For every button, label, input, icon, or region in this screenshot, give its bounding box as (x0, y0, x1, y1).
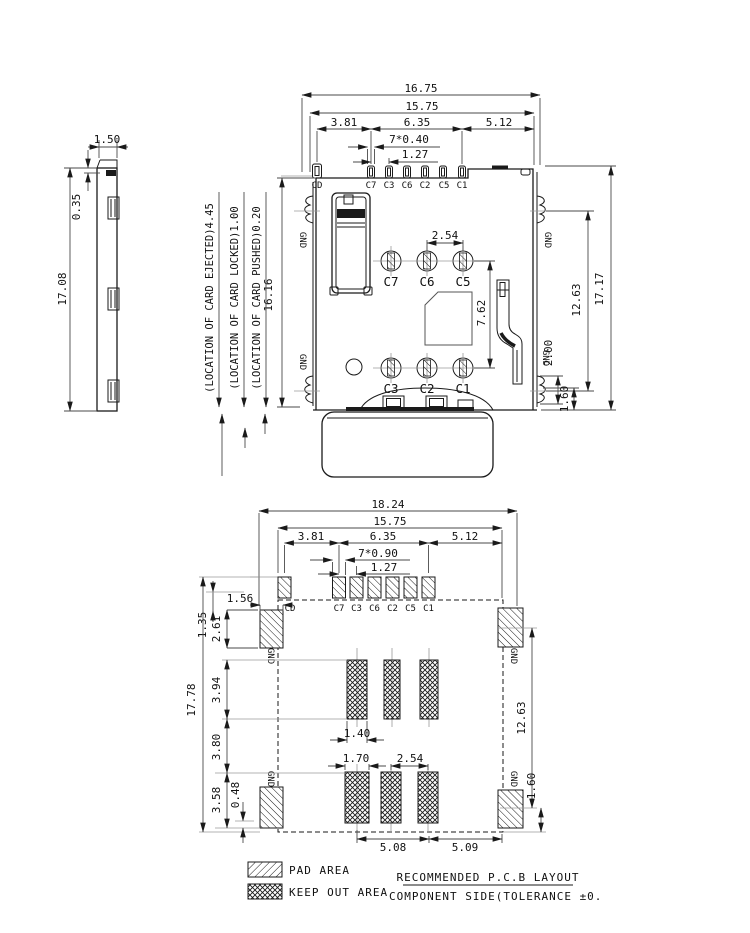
dim-label: 3.80 (210, 734, 223, 761)
gnd-label: GND (297, 354, 307, 370)
dim-label: 0.48 (229, 782, 242, 809)
pin-label: C5 (439, 181, 450, 191)
pad-label: C1 (423, 604, 434, 614)
dim-label: 3.58 (210, 787, 223, 814)
dim-label: 6.35 (404, 116, 431, 129)
pad-label: C2 (387, 604, 398, 614)
pad-label: C6 (369, 604, 380, 614)
pin-labels: CD C7 C3 C6 C2 C5 C1 (312, 181, 468, 191)
dim-label: 5.12 (452, 530, 479, 543)
contact-label: C6 (419, 274, 434, 289)
sim-connector-drawing: 1.50 0.35 17.08 GND GND GND GND (0, 0, 750, 933)
dim-label: 18.24 (371, 498, 404, 511)
dim-label: 1.60 (558, 386, 571, 413)
side-view: 1.50 0.35 17.08 (56, 133, 128, 411)
drawing-subtitle: COMPONENT SIDE(TOLERANCE ±0. (389, 890, 602, 903)
annotation-label: (LOCATION OF CARD EJECTED)4.45 (204, 203, 216, 393)
dim-label: 2.54 (397, 752, 424, 765)
dim-label: 17.78 (185, 683, 198, 716)
dim-label: 1.27 (402, 148, 429, 161)
dim-label: 7.62 (475, 300, 488, 327)
sim-card-outline (425, 292, 472, 345)
drawing-title: RECOMMENDED P.C.B LAYOUT (397, 871, 580, 884)
legend: PAD AREA KEEP OUT AREA RECOMMENDED P.C.B… (248, 862, 602, 903)
top-view-dimensions: 16.75 15.75 3.81 6.35 5.12 7*0.40 1.27 2… (204, 82, 616, 476)
pad-label: C7 (334, 604, 345, 614)
pcb-top-pads (278, 577, 435, 598)
dim-label: 6.35 (370, 530, 397, 543)
solder-pins (281, 164, 466, 178)
gnd-label: GND (508, 771, 518, 787)
gnd-label: GND (297, 232, 307, 248)
dim-label: 5.09 (452, 841, 479, 854)
dim-label: 2.54 (432, 229, 459, 242)
dim-label: 3.81 (298, 530, 325, 543)
pad-area-swatch (248, 862, 282, 877)
dim-label: 7*0.90 (358, 547, 398, 560)
keep-out-label: KEEP OUT AREA (289, 886, 388, 899)
locating-hole (346, 359, 362, 375)
annotation-label: (LOCATION OF CARD LOCKED)1.00 (229, 206, 241, 389)
dim-label: 17.17 (593, 272, 606, 305)
pin-label: C6 (402, 181, 413, 191)
gnd-label: GND (265, 648, 275, 664)
pad-label: C3 (351, 604, 362, 614)
gnd-label: GND (542, 232, 552, 248)
pcb-layout-view: CD C7 C3 C6 C2 C5 C1 GND GND GND GND 18.… (185, 498, 546, 854)
contact-label: C3 (383, 381, 398, 396)
dim-label: 16.75 (404, 82, 437, 95)
lock-slider (330, 193, 372, 295)
technical-drawing-canvas: 1.50 0.35 17.08 GND GND GND GND (0, 0, 750, 933)
keep-out-swatch (248, 884, 282, 899)
dim-label: 3.81 (331, 116, 358, 129)
pin-label: C2 (420, 181, 431, 191)
dim-label: 1.56 (227, 592, 254, 605)
dim-label: 1.60 (525, 773, 538, 800)
card-tray (322, 412, 493, 477)
pad-area-label: PAD AREA (289, 864, 350, 877)
keep-out-areas (345, 648, 438, 833)
dim-label: 16.16 (262, 278, 275, 311)
dim-label: 0.35 (70, 194, 83, 221)
pin-label: C7 (366, 181, 377, 191)
dim-label: 15.75 (405, 100, 438, 113)
dim-label: 1.40 (344, 727, 371, 740)
dim-label: 15.75 (373, 515, 406, 528)
dim-label: 2.61 (210, 616, 223, 643)
pin-label: C1 (457, 181, 468, 191)
dim-label: 5.08 (380, 841, 407, 854)
sim-contacts (373, 246, 481, 383)
contact-label: C7 (383, 274, 398, 289)
dim-label: 3.94 (210, 676, 223, 703)
top-view: GND GND GND GND CD C7 C3 C6 C2 C5 C1 C7 … (204, 82, 616, 477)
dim-label: 1.27 (371, 561, 398, 574)
pin-label: CD (312, 181, 323, 191)
dim-label: 1.70 (343, 752, 370, 765)
gnd-label: GND (508, 648, 518, 664)
contact-label: C5 (455, 274, 470, 289)
dim-label: 7*0.40 (389, 133, 429, 146)
pad-label: C5 (405, 604, 416, 614)
pin-label: C3 (384, 181, 395, 191)
dim-label: 1.35 (196, 612, 209, 639)
card-detect-lever (497, 280, 522, 384)
dim-label: 1.50 (94, 133, 121, 146)
pcb-pad-labels: CD C7 C3 C6 C2 C5 C1 (285, 604, 434, 614)
dim-label: 5.12 (486, 116, 513, 129)
dim-label: 17.08 (56, 272, 69, 305)
pad-label: CD (285, 604, 296, 614)
annotation-label: (LOCATION OF CARD PUSHED)0.20 (251, 206, 263, 389)
dim-label: 2.00 (542, 340, 555, 367)
dim-label: 12.63 (570, 283, 583, 316)
dim-label: 12.63 (515, 701, 528, 734)
